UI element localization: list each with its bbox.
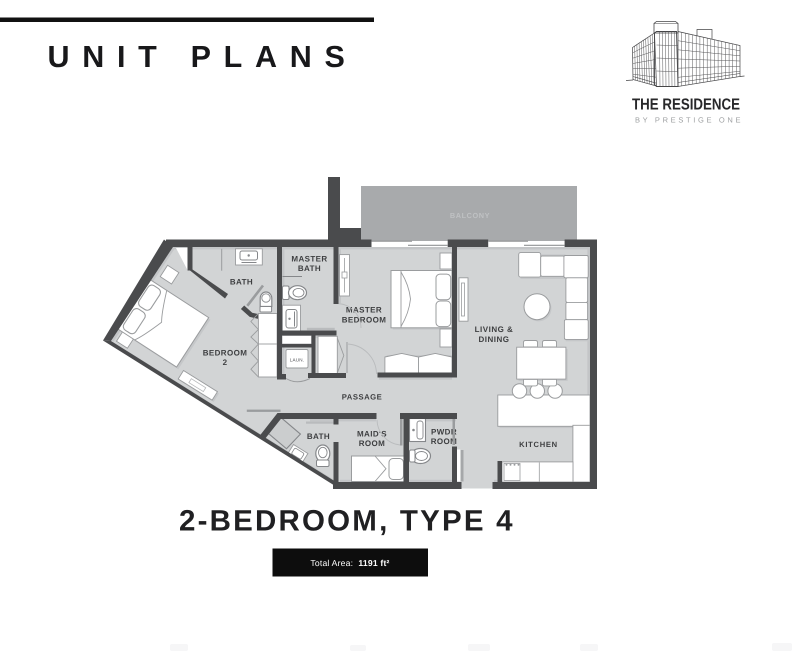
svg-text:LAUN.: LAUN. bbox=[290, 358, 305, 363]
svg-text:KITCHEN: KITCHEN bbox=[519, 440, 558, 449]
svg-text:MAID'S: MAID'S bbox=[357, 430, 387, 439]
svg-text:THE RESIDENCE: THE RESIDENCE bbox=[632, 97, 740, 114]
svg-text:ROOM: ROOM bbox=[359, 439, 386, 448]
svg-text:BATH: BATH bbox=[307, 432, 330, 441]
svg-text:MASTER: MASTER bbox=[291, 255, 327, 264]
svg-text:LIVING &: LIVING & bbox=[475, 325, 514, 334]
svg-text:2: 2 bbox=[223, 358, 228, 367]
svg-text:PASSAGE: PASSAGE bbox=[342, 393, 383, 402]
svg-text:BEDROOM: BEDROOM bbox=[203, 349, 248, 358]
svg-text:BEDROOM: BEDROOM bbox=[342, 316, 387, 325]
svg-text:BY PRESTIGE ONE: BY PRESTIGE ONE bbox=[635, 116, 743, 125]
svg-text:MASTER: MASTER bbox=[346, 306, 382, 315]
svg-text:DINING: DINING bbox=[479, 335, 510, 344]
svg-text:UNIT PLANS: UNIT PLANS bbox=[48, 40, 358, 74]
svg-text:BALCONY: BALCONY bbox=[450, 211, 490, 220]
svg-text:BATH: BATH bbox=[298, 264, 321, 273]
svg-text:BATH: BATH bbox=[230, 278, 253, 287]
svg-text:Total Area: 1191 ft²: Total Area: 1191 ft² bbox=[310, 558, 389, 568]
svg-text:2-BEDROOM, TYPE 4: 2-BEDROOM, TYPE 4 bbox=[179, 505, 515, 538]
